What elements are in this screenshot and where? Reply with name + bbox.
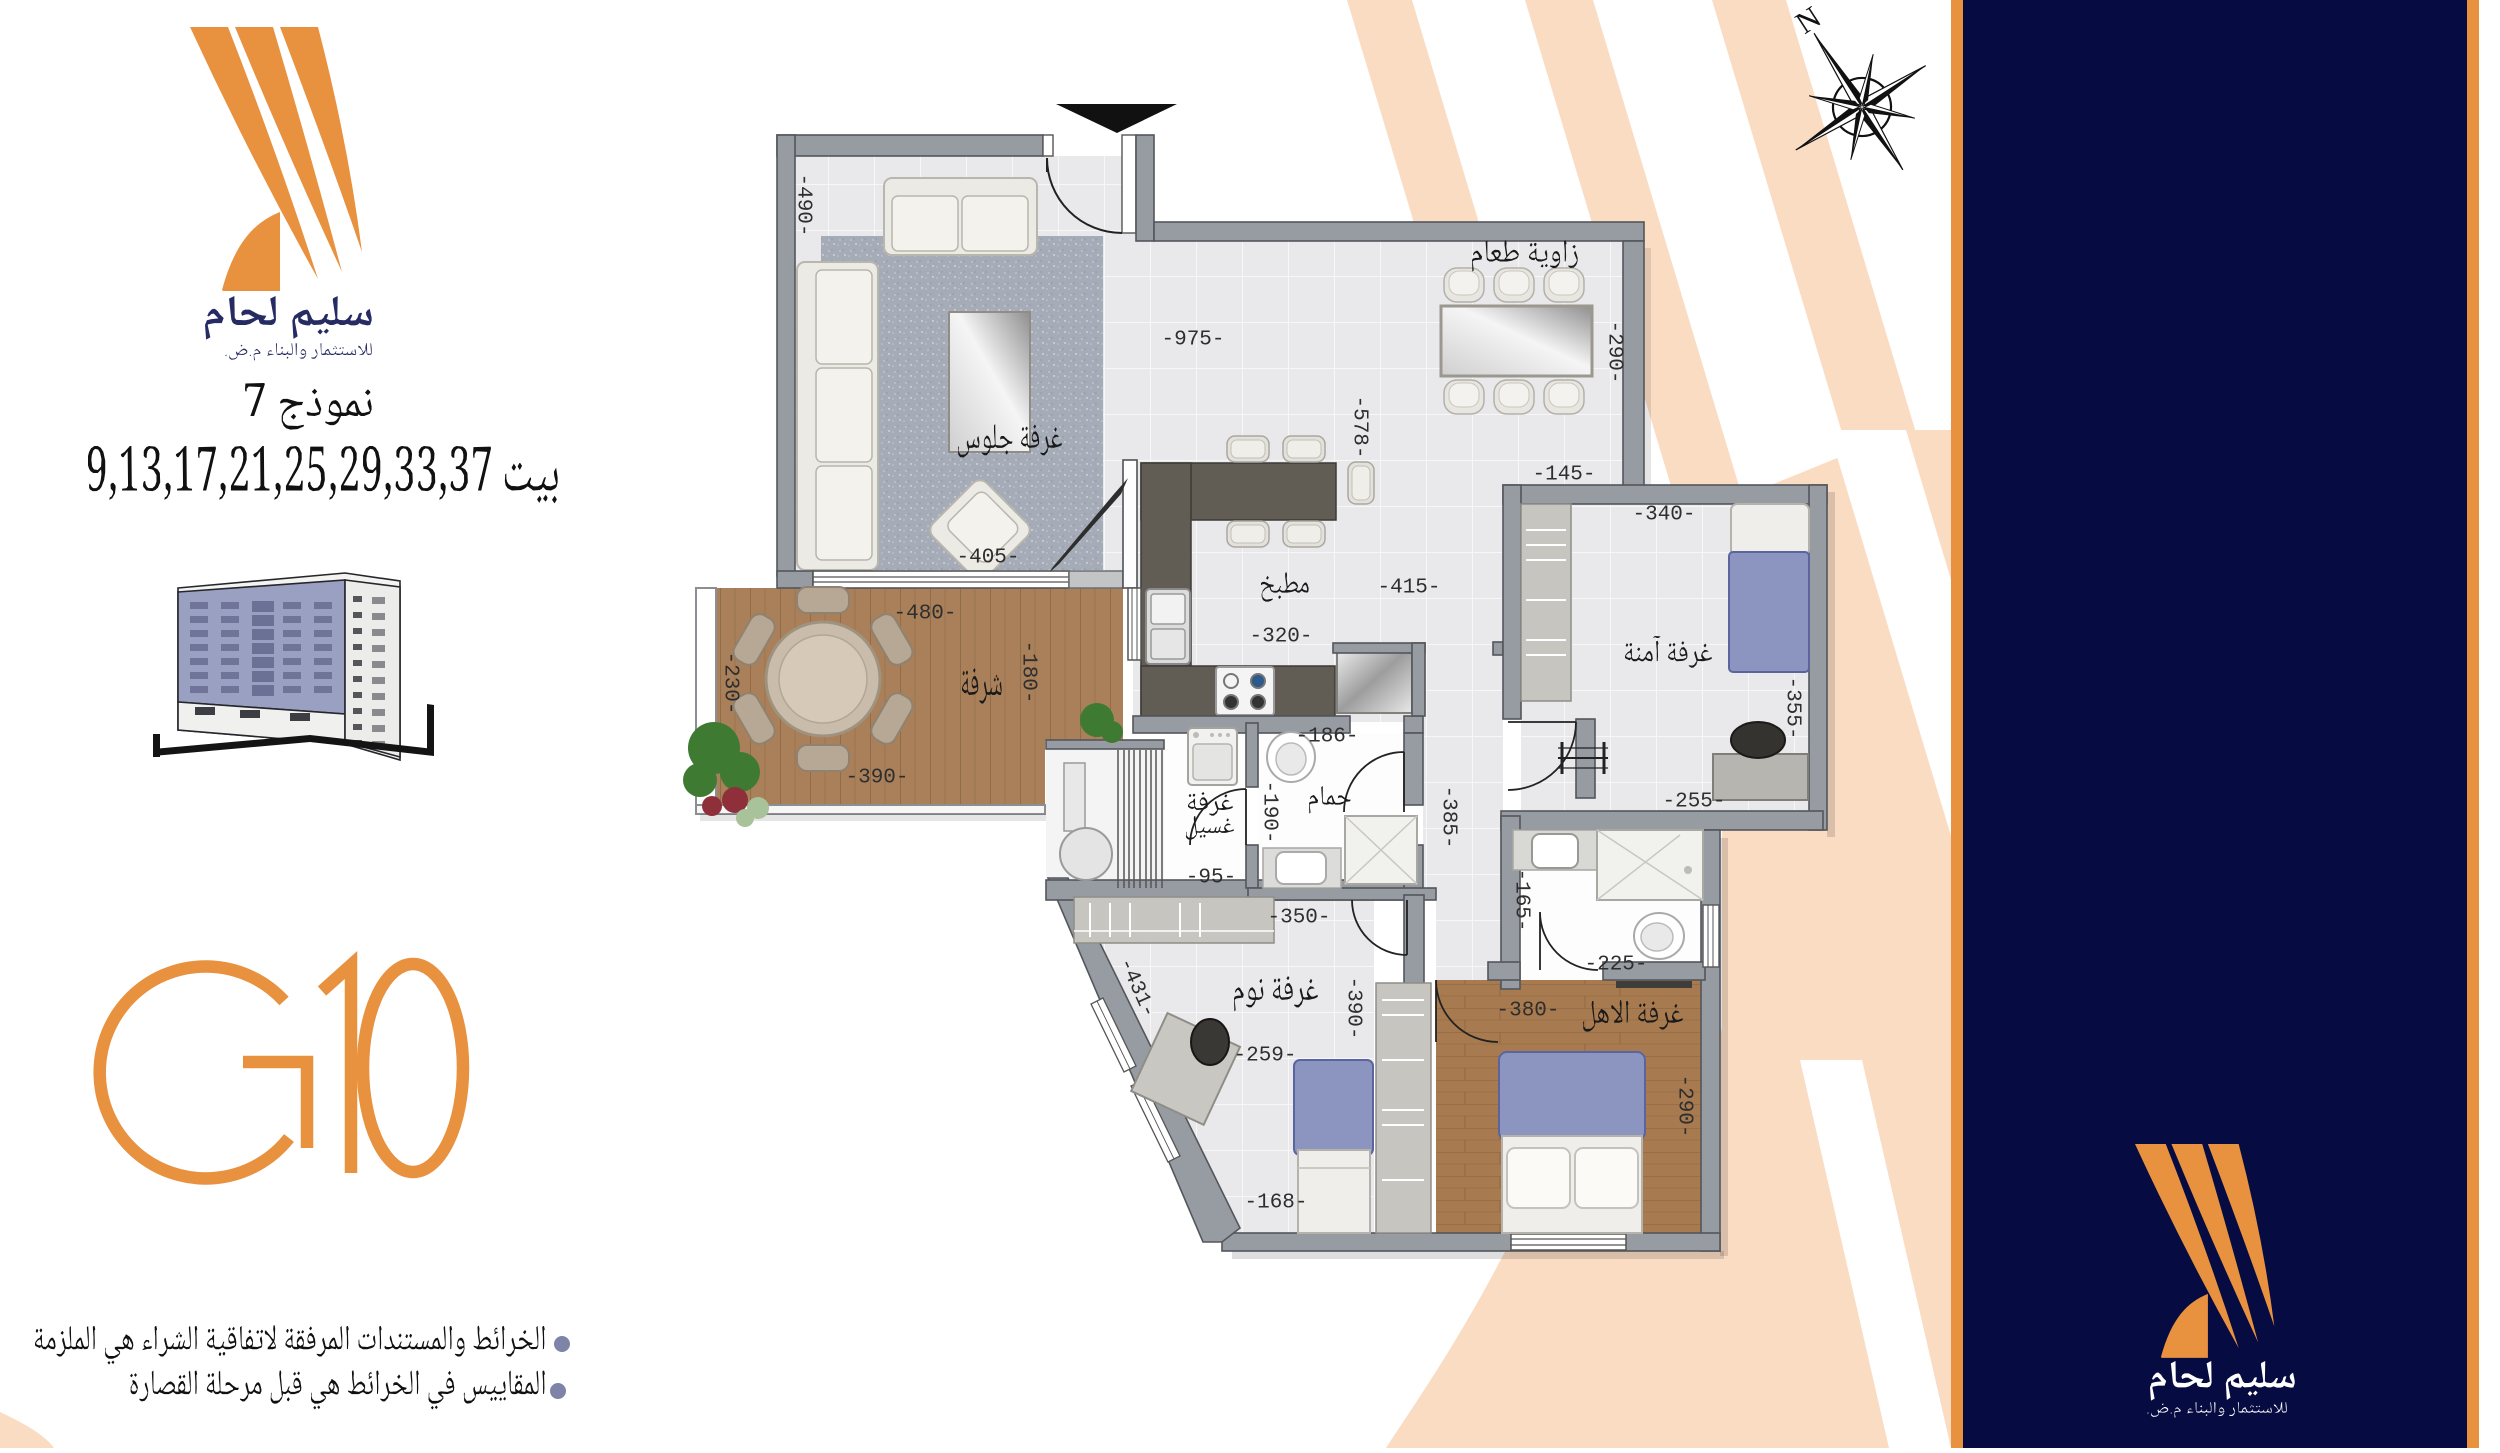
svg-text:-355-: -355- [1781,676,1804,739]
svg-text:-165-: -165- [1510,868,1533,931]
svg-text:-415-: -415- [1377,576,1440,599]
svg-text:-95-: -95- [1186,866,1236,889]
svg-text:-180-: -180- [1017,640,1040,703]
svg-text:-385-: -385- [1437,785,1460,848]
svg-text:-578-: -578- [1348,395,1371,458]
svg-text:-490-: -490- [792,173,815,236]
svg-text:-340-: -340- [1632,503,1695,526]
svg-text:-259-: -259- [1233,1044,1296,1067]
svg-text:-290-: -290- [1603,320,1626,383]
svg-text:-480-: -480- [893,602,956,625]
svg-text:-380-: -380- [1496,999,1559,1022]
svg-text:-405-: -405- [956,546,1019,569]
svg-text:-975-: -975- [1161,328,1224,351]
svg-text:-190-: -190- [1258,780,1281,843]
svg-text:-168-: -168- [1244,1191,1307,1214]
svg-text:-225-: -225- [1584,953,1647,976]
svg-text:-350-: -350- [1267,906,1330,929]
svg-text:-290-: -290- [1673,1074,1696,1137]
svg-text:-230-: -230- [719,651,742,714]
svg-text:-390-: -390- [845,766,908,789]
svg-text:-255-: -255- [1662,790,1725,813]
svg-text:-390-: -390- [1342,976,1365,1039]
svg-text:-145-: -145- [1532,463,1595,486]
svg-text:-320-: -320- [1249,625,1312,648]
svg-text:-186-: -186- [1295,725,1358,748]
